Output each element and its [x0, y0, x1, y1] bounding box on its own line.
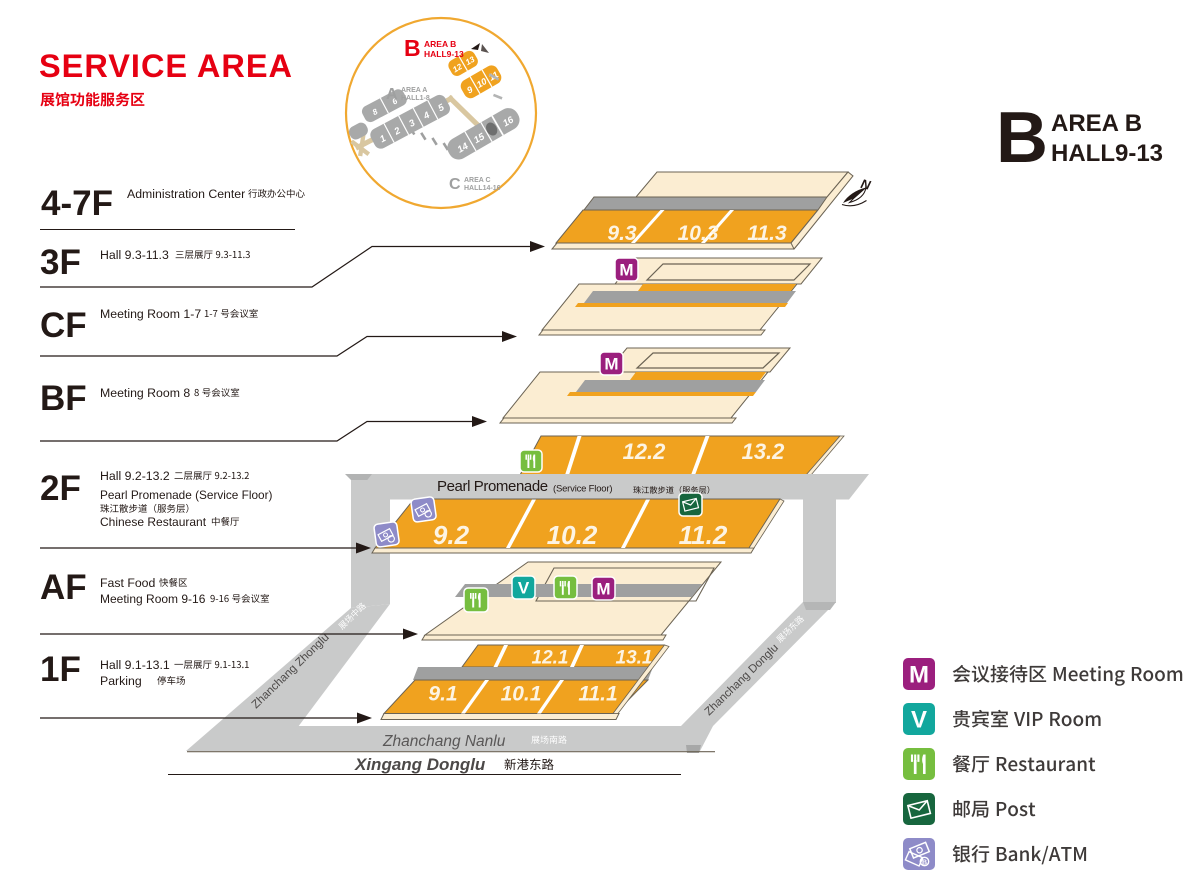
svg-text:1F: 1F — [40, 650, 81, 689]
svg-text:M: M — [909, 662, 929, 689]
svg-text:Administration Center: Administration Center — [127, 187, 245, 201]
svg-text:C: C — [449, 176, 461, 193]
svg-text:4-7F: 4-7F — [41, 184, 113, 223]
svg-text:11.3: 11.3 — [747, 222, 787, 245]
svg-text:Pearl Promenade: Pearl Promenade — [437, 478, 548, 495]
svg-text:V: V — [518, 579, 530, 598]
svg-text:2F: 2F — [40, 469, 81, 508]
svg-text:HALL9-13: HALL9-13 — [424, 49, 464, 59]
svg-text:V: V — [911, 707, 927, 734]
svg-text:HALL14-16: HALL14-16 — [464, 185, 501, 192]
svg-text:Meeting Room 9-16: Meeting Room 9-16 — [100, 592, 206, 606]
svg-text:SERVICE AREA: SERVICE AREA — [39, 48, 293, 84]
svg-text:AREA B: AREA B — [1051, 110, 1142, 137]
svg-text:Hall 9.1-13.1: Hall 9.1-13.1 — [100, 658, 170, 672]
svg-text:10.1: 10.1 — [501, 683, 542, 706]
svg-text:13.2: 13.2 — [742, 439, 786, 464]
svg-text:AREA C: AREA C — [464, 177, 491, 184]
svg-text:11.1: 11.1 — [578, 683, 617, 706]
svg-text:B: B — [922, 859, 927, 866]
svg-text:10.2: 10.2 — [547, 520, 598, 550]
svg-text:10.3: 10.3 — [678, 222, 719, 245]
svg-text:Hall 9.2-13.2: Hall 9.2-13.2 — [100, 469, 170, 483]
svg-text:A: A — [386, 86, 398, 103]
svg-text:Fast Food: Fast Food — [100, 576, 156, 590]
svg-text:AF: AF — [40, 568, 87, 607]
svg-text:CF: CF — [40, 306, 87, 345]
svg-text:Meeting Room 1-7: Meeting Room 1-7 — [100, 307, 201, 321]
svg-text:Xingang Donglu: Xingang Donglu — [354, 755, 486, 774]
svg-text:Zhanchang Nanlu: Zhanchang Nanlu — [382, 733, 506, 750]
svg-text:Chinese Restaurant: Chinese Restaurant — [100, 515, 207, 529]
svg-text:12.2: 12.2 — [623, 439, 667, 464]
svg-text:9.2: 9.2 — [433, 520, 470, 550]
svg-text:M: M — [604, 355, 618, 374]
svg-text:Hall 9.3-11.3: Hall 9.3-11.3 — [100, 248, 169, 262]
svg-text:M: M — [619, 261, 633, 280]
svg-text:13.1: 13.1 — [616, 648, 653, 669]
svg-text:HALL1-8: HALL1-8 — [401, 95, 430, 102]
svg-text:AREA B: AREA B — [424, 39, 456, 49]
svg-text:Parking: Parking — [100, 674, 142, 688]
svg-text:Meeting Room 8: Meeting Room 8 — [100, 386, 190, 400]
svg-text:9.1: 9.1 — [428, 683, 457, 706]
svg-text:Pearl Promenade (Service Floor: Pearl Promenade (Service Floor) — [100, 488, 273, 502]
svg-text:B: B — [404, 35, 421, 61]
svg-text:12.1: 12.1 — [532, 648, 569, 669]
svg-text:AREA A: AREA A — [401, 87, 427, 94]
svg-text:HALL9-13: HALL9-13 — [1051, 140, 1163, 167]
svg-text:3F: 3F — [40, 243, 81, 282]
svg-text:B: B — [996, 98, 1048, 178]
svg-text:9.3: 9.3 — [607, 222, 637, 245]
svg-text:(Service Floor): (Service Floor) — [553, 484, 612, 495]
svg-text:11.2: 11.2 — [679, 520, 728, 550]
svg-text:BF: BF — [40, 379, 87, 418]
svg-text:M: M — [596, 580, 610, 599]
